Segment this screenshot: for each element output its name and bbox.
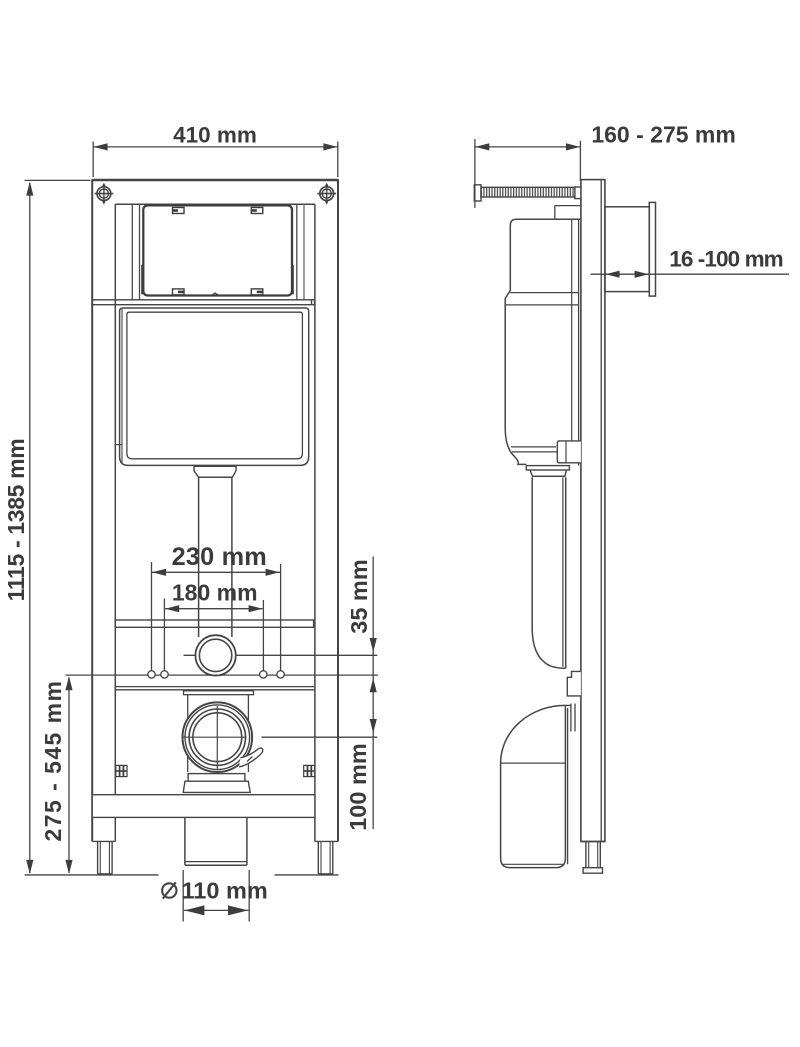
svg-text:180 mm: 180 mm	[172, 580, 258, 606]
svg-text:16 -100 mm: 16 -100 mm	[669, 246, 783, 271]
svg-text:160 - 275 mm: 160 - 275 mm	[591, 122, 735, 148]
svg-text:230 mm: 230 mm	[172, 543, 267, 571]
svg-text:275 - 545 mm: 275 - 545 mm	[40, 680, 66, 842]
svg-text:1115 - 1385 mm: 1115 - 1385 mm	[3, 439, 29, 602]
svg-text:35 mm: 35 mm	[346, 559, 372, 633]
svg-text:110 mm: 110 mm	[182, 877, 268, 903]
svg-text:410 mm: 410 mm	[173, 122, 257, 147]
svg-text:100 mm: 100 mm	[345, 743, 371, 831]
